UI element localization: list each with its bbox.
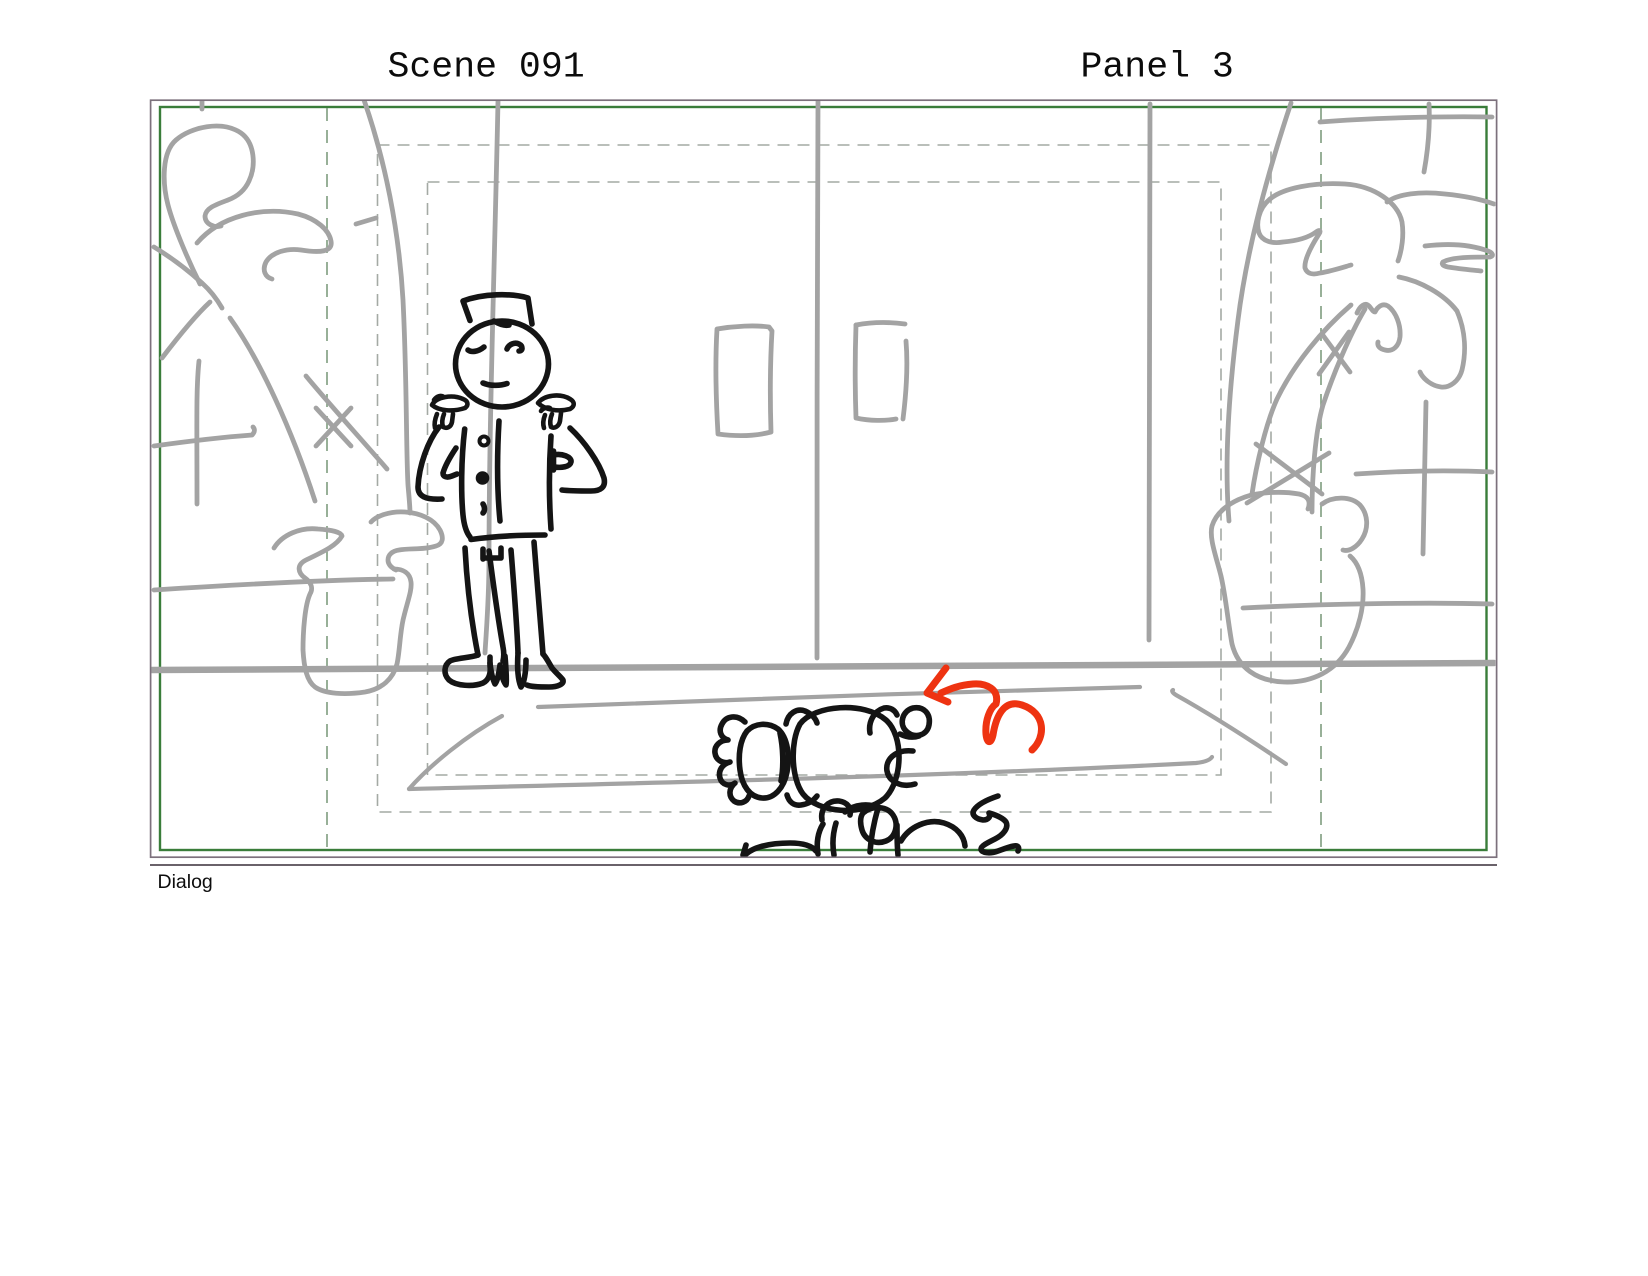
svg-text:Panel 3: Panel 3 — [1081, 47, 1234, 88]
svg-text:Scene 091: Scene 091 — [388, 47, 585, 88]
svg-text:Dialog: Dialog — [158, 871, 213, 893]
